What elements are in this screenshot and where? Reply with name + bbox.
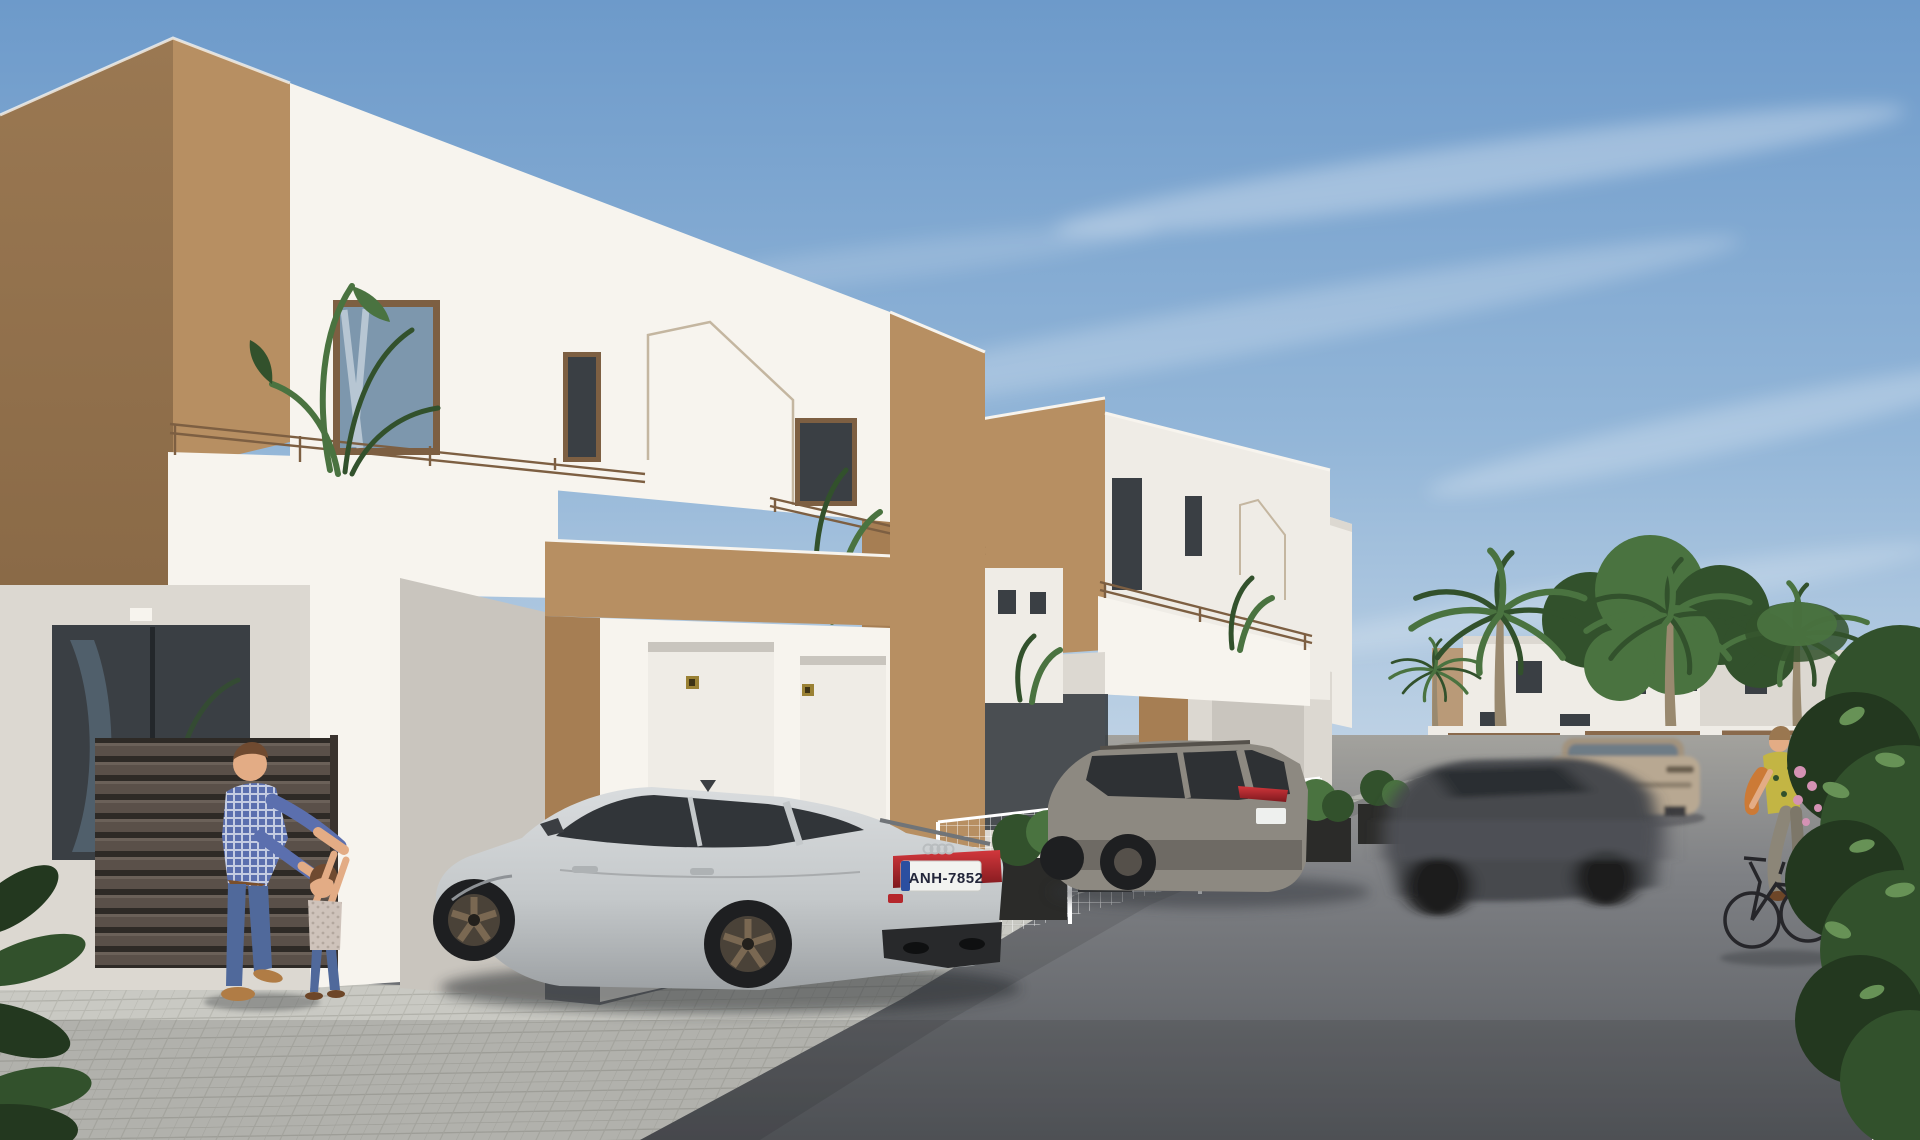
suv-wheel-front — [1040, 836, 1084, 880]
house1-slat-gate — [95, 738, 335, 968]
wall-lamp — [130, 608, 152, 621]
house1-brown-right-face — [173, 38, 290, 470]
audi-rs-badge — [888, 894, 903, 903]
audi-wheel-front — [433, 879, 515, 961]
plate-number: ANH-7852 — [909, 870, 984, 887]
render-canvas: ANH-7852 — [0, 0, 1920, 1140]
house1-right-brown-pillar — [890, 312, 985, 852]
moving-car-blurred — [1380, 758, 1670, 916]
house1-window-3 — [795, 418, 857, 506]
gap-distant-villa — [985, 568, 1063, 703]
suv-plate — [1256, 808, 1286, 824]
audi-license-plate: ANH-7852 — [901, 861, 983, 891]
audi-wheel-rear — [704, 900, 792, 988]
house1-brown-left-face — [0, 38, 173, 585]
child-shirt — [308, 900, 342, 950]
house2-window-2 — [1185, 496, 1202, 556]
audi-door-handle — [572, 866, 598, 873]
foreground-vignette — [0, 1020, 1920, 1140]
house1-balcony-parapet — [168, 452, 558, 598]
house1-window-2 — [563, 352, 601, 462]
street-render-scene: ANH-7852 — [0, 0, 1920, 1140]
house2-window-1 — [1112, 478, 1142, 590]
